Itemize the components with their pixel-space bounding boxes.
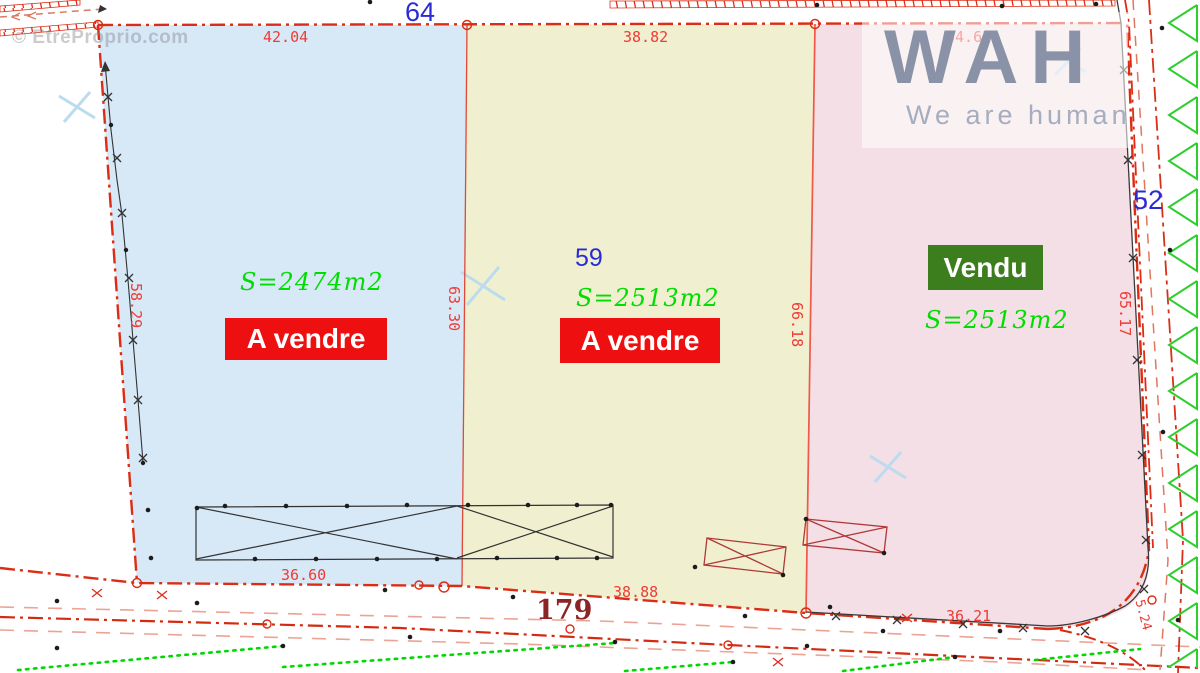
area-label-parcel-52: S=2513m2 — [925, 306, 1069, 334]
measure-top-middle: 38.82 — [623, 28, 668, 46]
cadastral-plan: © EtreProprio.com 42.04 38.82 34.65 36.6… — [0, 0, 1200, 673]
logo-title: WAH — [884, 18, 1130, 98]
parcel-number-64: 64 — [405, 0, 435, 28]
measure-left-side: 58.29 — [127, 283, 145, 328]
measure-bottom-right: 36.21 — [946, 607, 991, 625]
status-banner-sold: Vendu — [928, 245, 1043, 290]
area-label-parcel-64: S=2474m2 — [240, 268, 384, 296]
ladder-hatch-top-right — [610, 0, 1115, 8]
watermark: © EtreProprio.com — [12, 27, 189, 49]
status-banner-for-sale-1: A vendre — [225, 318, 387, 360]
area-label-parcel-59: S=2513m2 — [576, 284, 720, 312]
measure-divider-left: 63.30 — [445, 286, 463, 331]
parcel-number-52: 52 — [1133, 185, 1163, 216]
logo-subtitle: We are human — [906, 100, 1136, 131]
parcel-blue-shape — [98, 25, 467, 586]
measure-right-side: 65.17 — [1116, 291, 1134, 336]
status-banner-for-sale-2: A vendre — [560, 318, 720, 363]
green-hatch-strip — [1163, 0, 1200, 668]
measure-top-left: 42.04 — [263, 28, 308, 46]
measure-divider-right: 66.18 — [788, 302, 806, 347]
measure-bottom-middle: 38.88 — [613, 583, 658, 601]
road-number: 179 — [536, 595, 592, 626]
ladder-hatch-top-left-1 — [0, 0, 80, 12]
parcel-number-59: 59 — [575, 244, 603, 273]
measure-bottom-left: 36.60 — [281, 566, 326, 584]
